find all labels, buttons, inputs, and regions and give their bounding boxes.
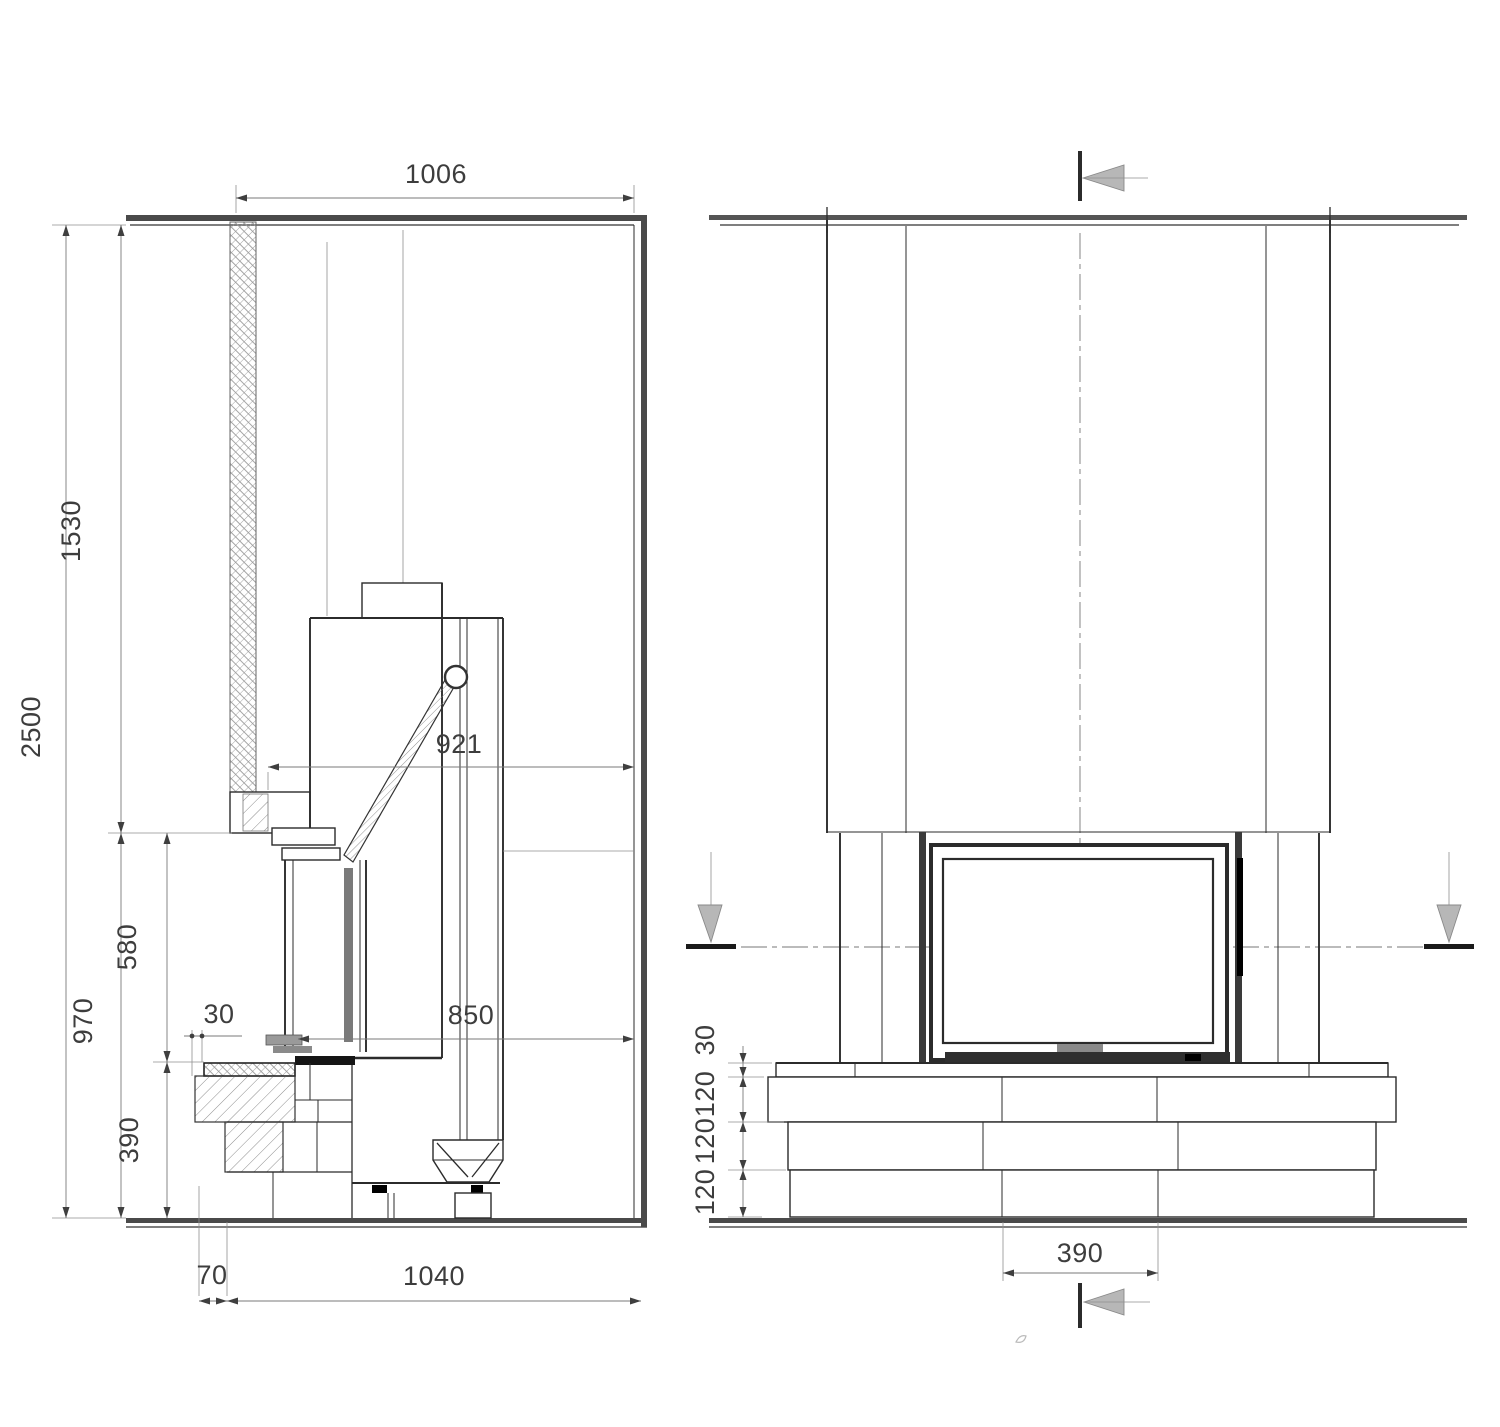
datum-arrow-left <box>686 852 736 949</box>
hearth-block <box>195 1076 295 1122</box>
side-section-view: 2500 1530 970 580 390 1006 <box>16 159 647 1305</box>
wall-duct-block <box>230 792 310 833</box>
air-hopper <box>433 1140 503 1182</box>
stray-mark <box>1016 1336 1026 1343</box>
dim-mid-height: 580 <box>112 924 142 971</box>
dim-course-bottom: 120 <box>690 1169 720 1216</box>
dim-total-height: 2500 <box>16 696 46 758</box>
floor-line-side <box>126 1218 647 1227</box>
dim-hearth-offset: 70 <box>196 1260 227 1290</box>
door-base-bar <box>295 1056 355 1065</box>
base-top-slab <box>776 1063 1388 1077</box>
dim-course-top: 120 <box>690 1071 720 1118</box>
dim-clearance-mid: 921 <box>436 729 483 759</box>
dim-wall-gap: 30 <box>203 999 234 1029</box>
door-lever-strut <box>344 680 454 862</box>
stove-feet-assembly <box>352 1183 500 1218</box>
door-glass-front <box>943 859 1213 1043</box>
dim-hearth-slab: 30 <box>690 1024 720 1055</box>
lever-pivot-circle <box>445 666 467 688</box>
door-glass-side <box>344 868 353 1042</box>
front-elevation-view: 30 120 120 120 390 <box>686 151 1474 1342</box>
dim-clearance-front: 850 <box>448 1000 495 1030</box>
door-handle <box>1057 1044 1103 1052</box>
ceiling-line-side <box>126 215 647 225</box>
datum-arrow-right <box>1424 852 1474 949</box>
hearth-base-front <box>768 1063 1396 1217</box>
dimensions-side: 2500 1530 970 580 390 1006 <box>16 159 641 1305</box>
section-marker-bottom <box>1080 1283 1150 1328</box>
base-course-1 <box>768 1077 1396 1122</box>
section-marker-top <box>1080 151 1148 201</box>
fireplace-installation-drawing: 2500 1530 970 580 390 1006 <box>0 0 1500 1427</box>
hearth-course-2 <box>225 1122 283 1172</box>
dim-course-mid: 120 <box>690 1118 720 1165</box>
room-wall-right <box>634 215 647 1227</box>
wall-insulation-strip <box>230 222 256 792</box>
hearth-base-side <box>195 1063 352 1218</box>
fire-door-front <box>919 832 1243 1063</box>
door-sill-ledge <box>266 1035 302 1045</box>
floor-line-front <box>709 1218 1467 1227</box>
dim-base-depth: 1040 <box>403 1261 465 1291</box>
technical-drawing-canvas: 2500 1530 970 580 390 1006 <box>0 0 1500 1427</box>
dim-top-width: 1006 <box>405 159 467 189</box>
dim-upper-height: 1530 <box>56 500 86 562</box>
dim-plinth-width: 390 <box>1057 1238 1104 1268</box>
ceiling-line-front <box>709 207 1467 233</box>
dim-lower-height: 970 <box>68 998 98 1045</box>
dim-hearth-height: 390 <box>114 1117 144 1164</box>
base-course-2 <box>788 1122 1376 1170</box>
chimney-flue <box>362 583 442 618</box>
hearth-top-slab <box>204 1063 295 1076</box>
base-course-3 <box>790 1170 1374 1217</box>
